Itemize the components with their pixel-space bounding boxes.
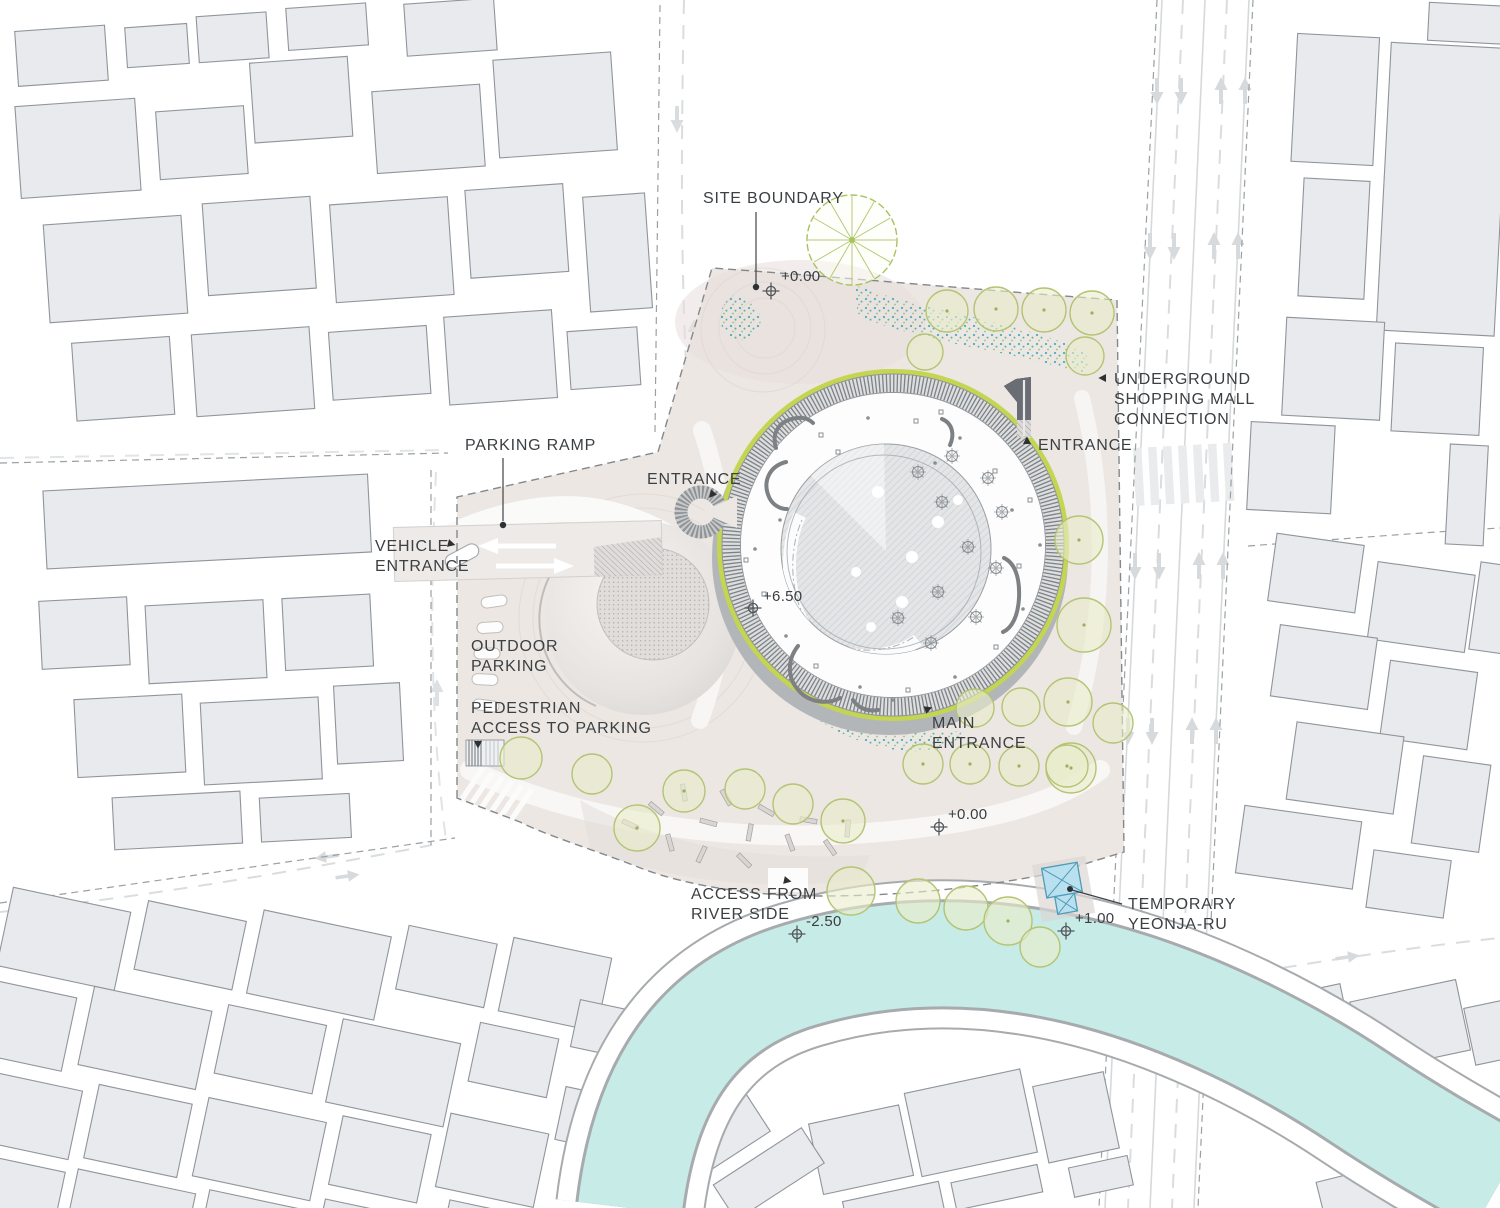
label-access-river-1: ACCESS FROM: [691, 886, 817, 903]
label-access-river-2: RIVER SIDE: [691, 906, 790, 923]
site-plan-sheet: SITE BOUNDARY +0.00 UNDERGROUND SHOPPING…: [0, 0, 1500, 1208]
label-underground-2: SHOPPING MALL: [1114, 391, 1255, 408]
label-main-entrance-1: MAIN: [932, 715, 975, 732]
label-vehicle-entrance-2: ENTRANCE: [375, 558, 469, 575]
label-entrance-west: ENTRANCE: [647, 471, 741, 488]
label-outdoor-parking-2: PARKING: [471, 658, 547, 675]
level-building-roof: +6.50: [763, 588, 802, 605]
label-parking-ramp: PARKING RAMP: [465, 437, 596, 454]
buildings-bottom-center: [807, 1051, 1134, 1208]
label-temporary-yeonja-1: TEMPORARY: [1128, 896, 1236, 913]
buildings-left-middle: [33, 473, 407, 853]
label-temporary-yeonja-2: YEONJA-RU: [1128, 916, 1228, 933]
label-outdoor-parking-1: OUTDOOR: [471, 638, 558, 655]
level-riverside: -2.50: [806, 913, 842, 930]
tree-icon: [807, 195, 897, 285]
level-pavilion: +1.00: [1075, 910, 1114, 927]
buildings-right-middle: [1227, 533, 1500, 922]
label-site-boundary: SITE BOUNDARY: [703, 190, 844, 207]
crosswalk-main-road: [1133, 443, 1234, 506]
label-entrance-northeast: ENTRANCE: [1038, 437, 1132, 454]
label-pedestrian-access-1: PEDESTRIAN: [471, 700, 581, 717]
stair-icon: [466, 740, 504, 766]
buildings-top-left: [9, 0, 658, 434]
buildings-top-right: [1245, 0, 1500, 546]
label-pedestrian-access-2: ACCESS TO PARKING: [471, 720, 652, 737]
label-underground-1: UNDERGROUND: [1114, 371, 1251, 388]
label-underground-3: CONNECTION: [1114, 411, 1230, 428]
label-vehicle-entrance-1: VEHICLE: [375, 538, 449, 555]
level-plaza-south: +0.00: [948, 806, 987, 823]
label-main-entrance-2: ENTRANCE: [932, 735, 1026, 752]
site-plan-drawing: SITE BOUNDARY +0.00 UNDERGROUND SHOPPING…: [0, 0, 1500, 1208]
level-site-north: +0.00: [781, 268, 820, 285]
